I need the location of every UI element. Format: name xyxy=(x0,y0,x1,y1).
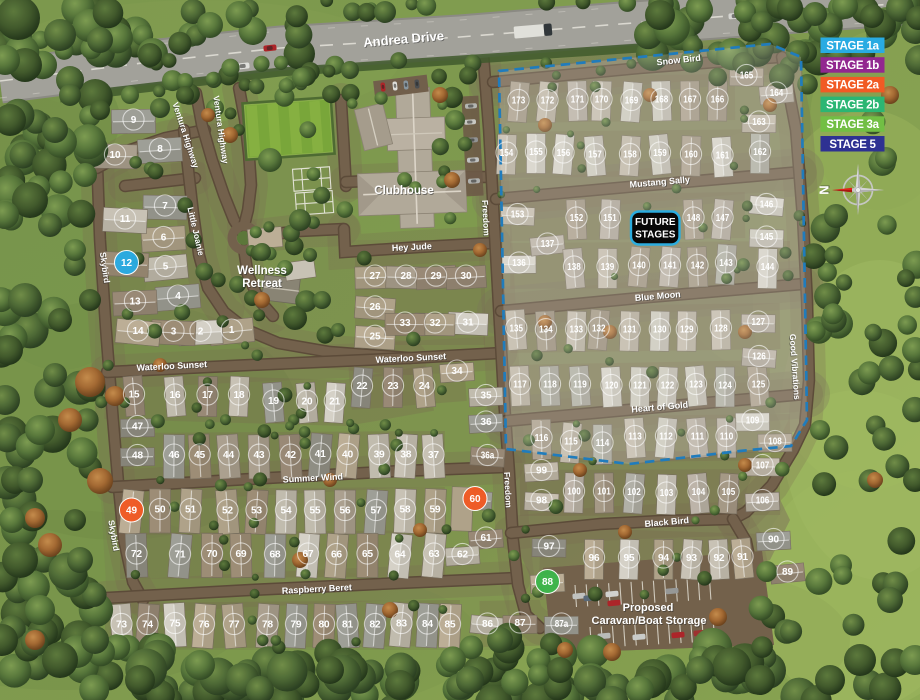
svg-text:51: 51 xyxy=(185,505,197,516)
svg-text:91: 91 xyxy=(737,552,749,563)
svg-text:Retreat: Retreat xyxy=(242,278,282,290)
svg-text:44: 44 xyxy=(223,450,235,461)
svg-text:23: 23 xyxy=(387,381,399,392)
svg-text:117: 117 xyxy=(513,380,527,391)
svg-text:70: 70 xyxy=(206,549,218,560)
svg-text:52: 52 xyxy=(222,506,234,517)
svg-text:109: 109 xyxy=(746,416,760,427)
svg-text:STAGE 3a: STAGE 3a xyxy=(826,119,879,131)
svg-text:85: 85 xyxy=(444,620,456,631)
svg-text:145: 145 xyxy=(760,232,774,243)
svg-text:108: 108 xyxy=(768,437,782,448)
svg-text:131: 131 xyxy=(623,325,637,336)
svg-text:N: N xyxy=(817,185,832,194)
svg-text:139: 139 xyxy=(601,262,615,273)
svg-text:55: 55 xyxy=(309,506,321,517)
svg-text:95: 95 xyxy=(623,553,635,564)
svg-text:73: 73 xyxy=(116,620,128,631)
svg-text:32: 32 xyxy=(429,318,441,329)
svg-text:156: 156 xyxy=(557,148,571,159)
svg-text:96: 96 xyxy=(588,553,600,564)
svg-text:76: 76 xyxy=(198,620,210,631)
svg-text:11: 11 xyxy=(120,214,131,225)
svg-text:STAGE 5: STAGE 5 xyxy=(829,139,876,151)
svg-text:71: 71 xyxy=(174,550,186,561)
svg-text:56: 56 xyxy=(339,506,351,517)
svg-text:127: 127 xyxy=(752,317,766,328)
svg-text:5: 5 xyxy=(163,262,169,273)
svg-text:134: 134 xyxy=(539,325,553,336)
svg-text:53: 53 xyxy=(251,506,263,517)
svg-text:103: 103 xyxy=(660,488,674,499)
svg-text:63: 63 xyxy=(428,549,440,560)
svg-text:69: 69 xyxy=(235,549,247,560)
svg-text:165: 165 xyxy=(740,71,754,82)
svg-text:133: 133 xyxy=(569,325,583,336)
svg-text:14: 14 xyxy=(132,326,144,337)
svg-text:STAGE 2a: STAGE 2a xyxy=(826,80,879,92)
svg-text:78: 78 xyxy=(262,620,274,631)
svg-text:152: 152 xyxy=(570,213,584,224)
svg-text:171: 171 xyxy=(571,95,585,106)
svg-text:157: 157 xyxy=(588,150,602,161)
svg-text:101: 101 xyxy=(597,487,611,498)
svg-text:24: 24 xyxy=(419,381,431,392)
svg-text:141: 141 xyxy=(663,261,677,272)
svg-text:39: 39 xyxy=(374,450,386,461)
svg-text:48: 48 xyxy=(132,451,144,462)
svg-text:1: 1 xyxy=(229,325,235,336)
svg-text:88: 88 xyxy=(542,577,554,588)
svg-text:54: 54 xyxy=(280,506,292,517)
svg-text:9: 9 xyxy=(131,115,137,126)
svg-text:119: 119 xyxy=(573,380,587,391)
svg-text:64: 64 xyxy=(394,550,406,561)
svg-text:Wellness: Wellness xyxy=(237,265,287,277)
svg-text:61: 61 xyxy=(480,533,492,544)
svg-text:136: 136 xyxy=(512,258,526,269)
svg-text:120: 120 xyxy=(605,381,619,392)
svg-text:138: 138 xyxy=(567,262,581,273)
svg-text:12: 12 xyxy=(121,258,133,269)
svg-text:153: 153 xyxy=(511,210,525,221)
svg-text:Clubhouse: Clubhouse xyxy=(374,185,433,197)
svg-text:Freedom: Freedom xyxy=(480,200,492,237)
svg-text:110: 110 xyxy=(720,432,734,443)
svg-text:105: 105 xyxy=(722,487,736,498)
svg-text:154: 154 xyxy=(500,148,514,159)
svg-text:87: 87 xyxy=(514,618,526,629)
svg-text:82: 82 xyxy=(369,620,381,631)
svg-text:142: 142 xyxy=(691,261,705,272)
svg-text:99: 99 xyxy=(536,466,548,477)
svg-text:75: 75 xyxy=(169,619,181,630)
svg-text:155: 155 xyxy=(529,147,543,158)
svg-text:129: 129 xyxy=(680,325,694,336)
svg-text:68: 68 xyxy=(269,550,281,561)
svg-text:162: 162 xyxy=(753,147,767,158)
svg-text:Hey Jude: Hey Jude xyxy=(392,241,432,253)
svg-text:3: 3 xyxy=(171,326,177,337)
svg-text:19: 19 xyxy=(268,396,280,407)
svg-text:26: 26 xyxy=(369,302,381,313)
svg-text:123: 123 xyxy=(689,380,703,391)
svg-text:81: 81 xyxy=(342,620,354,631)
svg-text:92: 92 xyxy=(713,553,725,564)
svg-text:104: 104 xyxy=(692,487,706,498)
svg-text:100: 100 xyxy=(567,487,581,498)
svg-text:128: 128 xyxy=(714,323,728,334)
svg-text:172: 172 xyxy=(541,96,555,107)
svg-text:31: 31 xyxy=(462,317,474,328)
svg-text:38: 38 xyxy=(400,450,412,461)
svg-text:8: 8 xyxy=(157,144,163,155)
svg-text:111: 111 xyxy=(691,432,705,443)
svg-text:74: 74 xyxy=(142,620,154,631)
svg-text:36: 36 xyxy=(480,417,492,428)
svg-text:147: 147 xyxy=(716,213,730,224)
svg-text:STAGES: STAGES xyxy=(635,230,676,241)
svg-text:132: 132 xyxy=(592,323,606,334)
svg-text:126: 126 xyxy=(752,352,766,363)
svg-text:49: 49 xyxy=(126,506,138,517)
svg-text:STAGE 2b: STAGE 2b xyxy=(826,99,879,111)
svg-text:135: 135 xyxy=(510,323,524,334)
svg-text:43: 43 xyxy=(253,450,265,461)
svg-text:18: 18 xyxy=(233,390,245,401)
svg-text:106: 106 xyxy=(756,496,770,507)
svg-text:40: 40 xyxy=(342,449,354,460)
svg-text:130: 130 xyxy=(653,325,667,336)
svg-text:42: 42 xyxy=(285,450,297,461)
svg-text:29: 29 xyxy=(430,271,442,282)
svg-text:41: 41 xyxy=(315,449,327,460)
svg-text:77: 77 xyxy=(228,620,240,631)
svg-text:15: 15 xyxy=(128,390,140,401)
svg-text:35: 35 xyxy=(480,391,492,402)
svg-text:28: 28 xyxy=(400,271,412,282)
svg-text:163: 163 xyxy=(752,117,766,128)
svg-text:2: 2 xyxy=(198,326,204,337)
svg-text:116: 116 xyxy=(535,433,549,444)
svg-text:125: 125 xyxy=(752,380,766,391)
svg-text:80: 80 xyxy=(318,620,330,631)
svg-text:34: 34 xyxy=(451,366,463,377)
svg-text:168: 168 xyxy=(655,95,669,106)
svg-text:160: 160 xyxy=(684,150,698,161)
svg-text:Caravan/Boat Storage: Caravan/Boat Storage xyxy=(592,615,707,627)
svg-text:107: 107 xyxy=(756,461,770,472)
svg-text:86: 86 xyxy=(482,619,494,630)
svg-text:33: 33 xyxy=(399,318,411,329)
svg-text:79: 79 xyxy=(290,620,302,631)
svg-text:17: 17 xyxy=(202,390,214,401)
svg-text:173: 173 xyxy=(512,96,526,107)
svg-text:22: 22 xyxy=(356,381,368,392)
svg-text:FUTURE: FUTURE xyxy=(635,217,676,228)
svg-text:114: 114 xyxy=(596,438,610,449)
svg-text:151: 151 xyxy=(603,213,617,224)
svg-text:97: 97 xyxy=(543,542,555,553)
svg-text:161: 161 xyxy=(716,151,730,162)
svg-text:137: 137 xyxy=(541,239,555,250)
svg-text:59: 59 xyxy=(429,505,441,516)
svg-text:87a: 87a xyxy=(555,619,569,630)
svg-text:20: 20 xyxy=(301,396,313,407)
svg-text:27: 27 xyxy=(369,271,381,282)
svg-text:13: 13 xyxy=(129,297,141,308)
svg-text:89: 89 xyxy=(782,567,794,578)
svg-text:169: 169 xyxy=(625,96,639,107)
svg-text:118: 118 xyxy=(543,380,557,391)
svg-text:30: 30 xyxy=(460,271,472,282)
svg-text:21: 21 xyxy=(329,396,341,407)
svg-text:STAGE 1b: STAGE 1b xyxy=(826,60,879,72)
svg-text:25: 25 xyxy=(369,331,381,342)
svg-text:67: 67 xyxy=(302,549,314,560)
svg-text:124: 124 xyxy=(718,381,732,392)
svg-text:146: 146 xyxy=(760,200,774,211)
svg-text:84: 84 xyxy=(422,619,434,630)
svg-text:140: 140 xyxy=(632,261,646,272)
svg-text:102: 102 xyxy=(627,487,641,498)
svg-text:60: 60 xyxy=(469,494,481,505)
svg-text:98: 98 xyxy=(536,496,548,507)
svg-text:16: 16 xyxy=(169,390,181,401)
svg-text:170: 170 xyxy=(595,95,609,106)
svg-text:122: 122 xyxy=(661,381,675,392)
svg-text:7: 7 xyxy=(162,201,168,212)
svg-text:Freedom: Freedom xyxy=(502,472,514,509)
svg-text:83: 83 xyxy=(396,619,408,630)
svg-text:58: 58 xyxy=(399,505,411,516)
svg-text:45: 45 xyxy=(194,450,206,461)
svg-text:6: 6 xyxy=(161,233,167,244)
svg-text:37: 37 xyxy=(428,450,440,461)
svg-text:144: 144 xyxy=(761,262,775,273)
svg-text:90: 90 xyxy=(768,535,780,546)
svg-text:121: 121 xyxy=(633,381,647,392)
svg-text:158: 158 xyxy=(623,150,637,161)
svg-text:115: 115 xyxy=(564,437,578,448)
svg-text:62: 62 xyxy=(457,550,469,561)
svg-text:164: 164 xyxy=(770,88,784,99)
svg-text:57: 57 xyxy=(370,506,382,517)
svg-text:46: 46 xyxy=(168,450,180,461)
svg-text:72: 72 xyxy=(131,549,143,560)
svg-text:65: 65 xyxy=(362,549,374,560)
svg-text:66: 66 xyxy=(331,550,343,561)
svg-text:112: 112 xyxy=(659,432,673,443)
svg-text:143: 143 xyxy=(719,258,733,269)
svg-text:113: 113 xyxy=(628,432,642,443)
svg-text:47: 47 xyxy=(132,422,144,433)
svg-text:166: 166 xyxy=(711,95,725,106)
svg-text:STAGE 1a: STAGE 1a xyxy=(826,40,879,52)
svg-text:159: 159 xyxy=(653,148,667,159)
svg-text:10: 10 xyxy=(109,150,121,161)
svg-text:148: 148 xyxy=(687,213,701,224)
svg-text:36a: 36a xyxy=(481,451,495,462)
svg-text:167: 167 xyxy=(683,95,697,106)
svg-text:50: 50 xyxy=(154,505,166,516)
svg-text:4: 4 xyxy=(175,291,181,302)
svg-text:Proposed: Proposed xyxy=(623,602,674,614)
svg-text:93: 93 xyxy=(686,553,698,564)
svg-text:94: 94 xyxy=(658,553,670,564)
